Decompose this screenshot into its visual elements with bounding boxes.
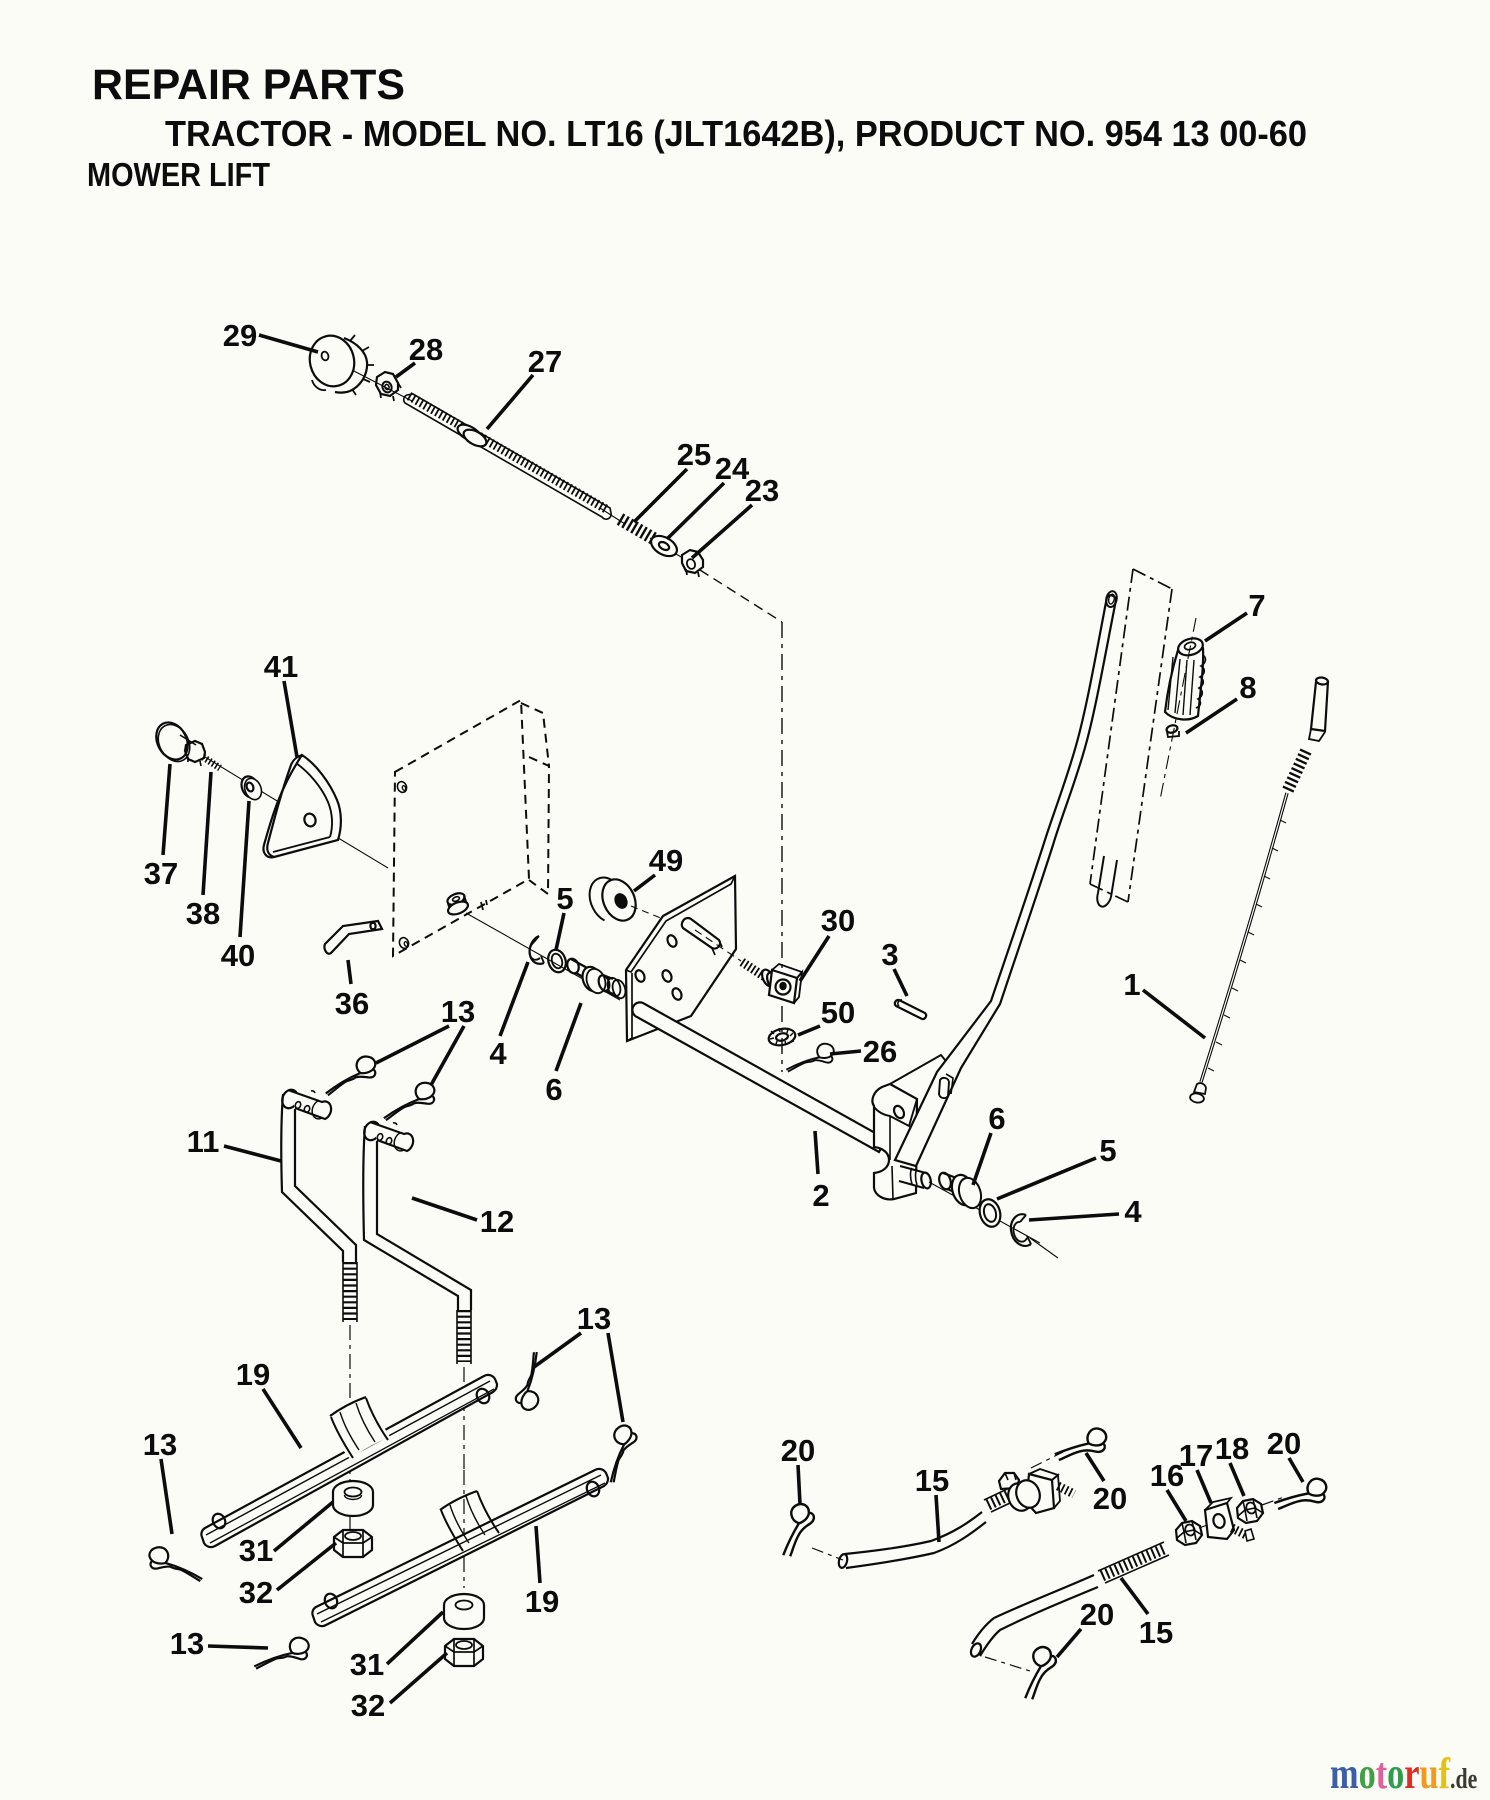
svg-text:20: 20 [1267,1426,1301,1461]
svg-text:32: 32 [239,1575,273,1610]
svg-text:23: 23 [745,473,779,508]
svg-text:36: 36 [335,986,369,1021]
svg-text:25: 25 [677,437,711,472]
svg-text:18: 18 [1215,1431,1249,1466]
svg-text:20: 20 [781,1433,815,1468]
svg-text:41: 41 [264,649,298,684]
svg-text:5: 5 [556,881,573,916]
svg-text:31: 31 [239,1533,273,1568]
svg-text:37: 37 [144,856,178,891]
svg-text:12: 12 [480,1204,514,1239]
svg-text:17: 17 [1179,1438,1213,1473]
svg-text:30: 30 [821,903,855,938]
svg-text:2: 2 [812,1178,829,1213]
svg-text:4: 4 [489,1036,507,1071]
svg-text:38: 38 [186,896,220,931]
svg-text:27: 27 [528,344,562,379]
svg-text:13: 13 [577,1301,611,1336]
svg-text:6: 6 [545,1072,562,1107]
svg-text:13: 13 [441,994,475,1029]
svg-text:15: 15 [915,1463,949,1498]
svg-text:32: 32 [351,1688,385,1723]
svg-text:26: 26 [863,1034,897,1069]
svg-text:19: 19 [525,1584,559,1619]
svg-text:49: 49 [649,843,683,878]
svg-text:13: 13 [143,1427,177,1462]
svg-text:8: 8 [1239,670,1256,705]
svg-text:20: 20 [1080,1597,1114,1632]
svg-text:13: 13 [170,1626,204,1661]
svg-text:REPAIR PARTS: REPAIR PARTS [92,61,405,109]
svg-text:40: 40 [221,938,255,973]
svg-text:TRACTOR - MODEL NO. LT16 (JLT1: TRACTOR - MODEL NO. LT16 (JLT1642B), PRO… [165,113,1307,154]
svg-text:4: 4 [1124,1194,1142,1229]
svg-text:MOWER LIFT: MOWER LIFT [87,156,270,193]
svg-text:50: 50 [821,995,855,1030]
svg-text:29: 29 [223,318,257,353]
svg-text:6: 6 [988,1101,1005,1136]
svg-text:11: 11 [187,1124,220,1159]
svg-text:31: 31 [350,1647,384,1682]
svg-text:1: 1 [1123,967,1140,1002]
svg-text:20: 20 [1093,1481,1127,1516]
svg-text:19: 19 [236,1357,270,1392]
svg-text:15: 15 [1139,1615,1173,1650]
svg-text:7: 7 [1248,588,1265,623]
svg-text:3: 3 [881,937,898,972]
svg-text:5: 5 [1099,1133,1116,1168]
